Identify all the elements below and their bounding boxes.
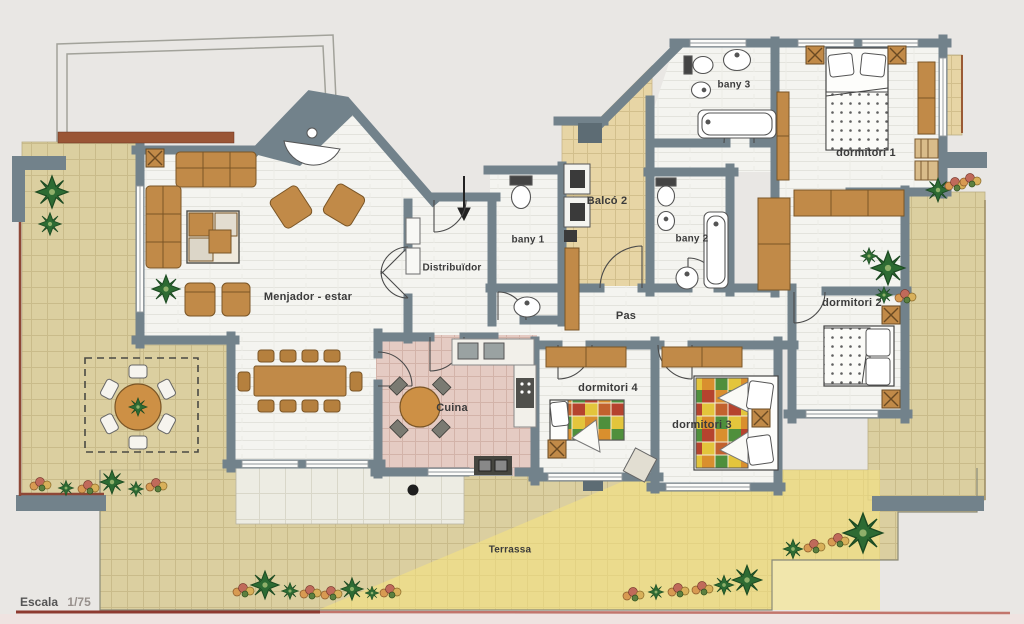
room-label-dormitori3: dormitori 3	[672, 419, 732, 431]
floorplan-canvas	[0, 0, 1024, 624]
floorplan-page: Menjador - estar Distribuïdor bany 1 Bal…	[0, 0, 1024, 624]
room-label-dormitori2: dormitori 2	[822, 297, 882, 309]
room-label-balco2: Balcó 2	[587, 195, 628, 207]
room-label-dormitori1: dormitori 1	[836, 147, 896, 159]
scale-note: Escala 1/75	[20, 595, 91, 609]
side-table-icon	[146, 149, 164, 167]
drain-dot	[408, 485, 419, 496]
room-label-pas: Pas	[616, 310, 636, 322]
room-label-menjador: Menjador - estar	[264, 291, 352, 303]
scale-value: 1/75	[67, 595, 90, 609]
room-label-terrassa: Terrassa	[489, 545, 532, 556]
room-label-distribuidor: Distribuïdor	[422, 263, 481, 274]
room-label-bany1: bany 1	[512, 235, 545, 246]
scale-underline	[16, 612, 1010, 613]
room-label-bany2: bany 2	[676, 234, 709, 245]
coffee-table-group	[187, 211, 239, 263]
room-label-cuina: Cuina	[436, 402, 468, 414]
scan-bottom-strip	[0, 614, 1024, 624]
room-label-dormitori4: dormitori 4	[578, 382, 638, 394]
room-label-bany3: bany 3	[718, 80, 751, 91]
scale-word: Escala	[20, 595, 58, 609]
